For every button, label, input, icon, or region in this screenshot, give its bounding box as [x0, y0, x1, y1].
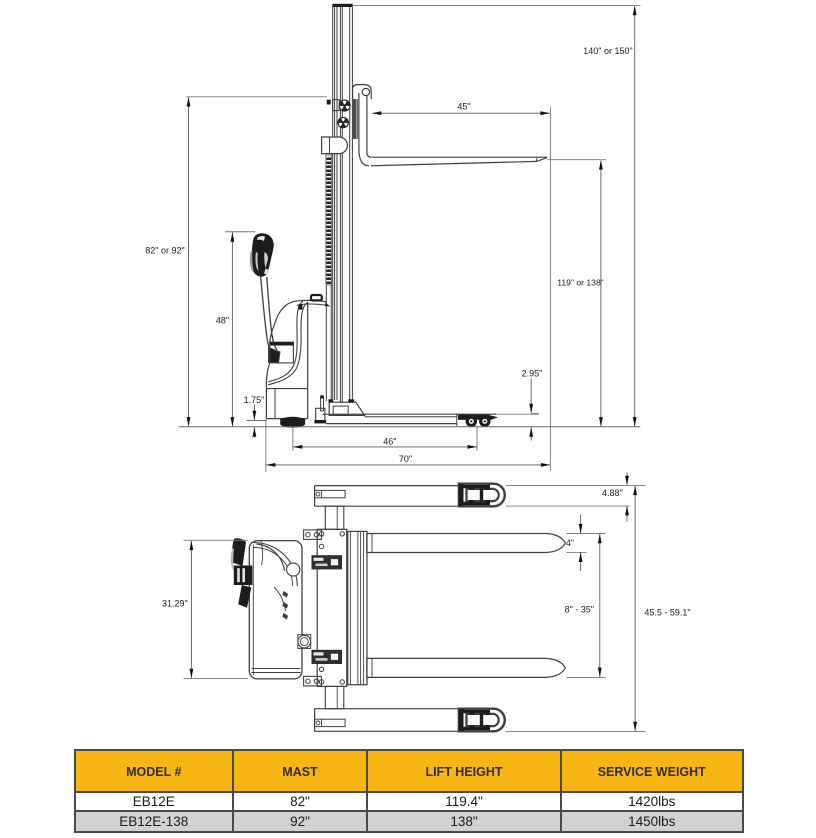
svg-text:45": 45": [457, 102, 470, 112]
svg-text:70": 70": [399, 454, 412, 464]
svg-text:1.75": 1.75": [244, 395, 265, 405]
svg-text:45.5 - 59.1": 45.5 - 59.1": [644, 608, 690, 618]
svg-text:4": 4": [566, 538, 574, 548]
svg-text:82" or 92": 82" or 92": [145, 246, 184, 256]
svg-text:119" or 138": 119" or 138": [557, 278, 604, 288]
svg-text:46": 46": [383, 436, 396, 446]
svg-text:2.95": 2.95": [522, 369, 543, 379]
svg-text:48": 48": [216, 316, 229, 326]
svg-text:140" or 150": 140" or 150": [583, 46, 632, 56]
svg-text:31.29": 31.29": [162, 599, 188, 609]
svg-text:4.88": 4.88": [602, 488, 623, 498]
svg-text:8" - 35": 8" - 35": [565, 604, 594, 614]
